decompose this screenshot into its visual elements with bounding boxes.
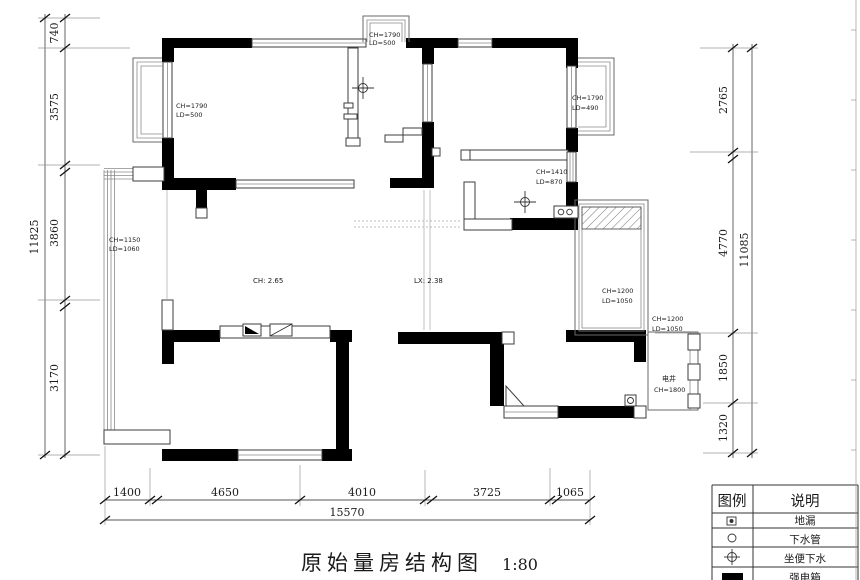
window [504, 406, 558, 418]
wall-segment [406, 38, 458, 48]
thin-wall [162, 300, 173, 330]
wall-segment [162, 178, 236, 190]
legend-row-desc: 强电箱 [789, 571, 821, 580]
label-bathroom-ld: LD=870 [536, 178, 562, 186]
dim-left-seg-3: 3170 [48, 364, 61, 392]
dim-bottom-seg-4: 1065 [556, 486, 584, 499]
wall-segment [398, 332, 502, 344]
thin-wall [432, 148, 440, 156]
label-balcony-right-lower-ld: LD=1050 [652, 325, 683, 333]
wall-segment [322, 449, 352, 461]
legend-table: 图例 说明 地漏 下水管 坐便下水 强电箱 [712, 485, 858, 580]
dim-right-seg-1: 4770 [717, 229, 730, 257]
drawing-scale: 1:80 [502, 555, 538, 574]
drawing-title: 原始量房结构图 [301, 551, 483, 575]
thin-wall [346, 138, 360, 146]
wall-segment [490, 344, 504, 406]
legend-col-desc: 说明 [791, 493, 820, 510]
wall-segment [422, 48, 434, 64]
floor-drain-symbol [625, 395, 636, 406]
window [163, 62, 172, 138]
dimension-right: 2765 4770 1850 1320 11085 [655, 44, 758, 458]
legend-row-desc: 坐便下水 [784, 552, 826, 565]
label-beam-height: LX: 2.38 [414, 277, 443, 285]
dim-right-total: 11085 [738, 233, 751, 268]
symbols [243, 77, 636, 406]
wall-segment [196, 190, 207, 208]
sheet-edge-ruler [851, 0, 856, 580]
window [458, 39, 492, 47]
thin-wall [348, 48, 358, 138]
wall-segment [336, 342, 349, 450]
drain-pipe-symbol [554, 206, 578, 218]
label-balcony-left-ld: LD=1060 [109, 245, 140, 253]
door-swing [506, 386, 524, 406]
dim-bottom-seg-0: 1400 [113, 486, 141, 499]
label-bathroom-ch: CH=1410 [536, 168, 567, 176]
window [567, 152, 576, 182]
legend-col-symbol: 图例 [718, 493, 747, 510]
thin-wall [385, 135, 403, 142]
thin-wall [344, 114, 357, 119]
legend-row-desc: 地漏 [795, 514, 816, 527]
wall-segment [566, 48, 578, 68]
label-balcony-right-upper-ld: LD=1050 [602, 297, 633, 305]
hatch-area [582, 207, 641, 229]
label-shaft-ch: CH=1800 [654, 386, 685, 394]
floorplan-canvas: CH=1790 LD=500 CH=1790 LD=500 CH=1150 LD… [0, 0, 860, 580]
label-balcony-right-lower-ch: CH=1200 [652, 315, 683, 323]
label-bay-right-ch: CH=1790 [572, 94, 603, 102]
wall-segment [566, 330, 646, 342]
label-shaft-name: 电井 [662, 374, 676, 383]
wall-segment [566, 128, 578, 152]
thin-wall [634, 406, 646, 418]
thin-wall [468, 150, 568, 160]
wall-segment [162, 330, 220, 342]
thin-wall [403, 128, 422, 135]
wall-segment [390, 178, 422, 188]
label-balcony-left-ch: CH=1150 [109, 236, 140, 244]
window [238, 450, 322, 460]
legend-row-desc: 下水管 [789, 533, 821, 546]
label-bay-top-ld: LD=500 [369, 39, 395, 47]
balcony-sill [104, 430, 170, 444]
dim-right-seg-2: 1850 [717, 354, 730, 382]
window [236, 180, 354, 188]
dim-bottom-seg-2: 4010 [348, 486, 376, 499]
balcony-left [104, 167, 170, 444]
dim-right-seg-0: 2765 [717, 86, 730, 114]
wall-segment [162, 48, 174, 62]
window [423, 64, 432, 122]
label-bay-top-ch: CH=1790 [369, 31, 400, 39]
label-living-height: CH: 2.65 [253, 277, 283, 285]
label-balcony-right-upper-ch: CH=1200 [602, 287, 633, 295]
thin-wall [502, 332, 514, 344]
wall-segment [634, 342, 646, 362]
drain-pipe-icon [728, 534, 736, 542]
balcony-sill [133, 167, 164, 181]
drawing-sheet: CH=1790 LD=500 CH=1790 LD=500 CH=1150 LD… [0, 0, 860, 580]
dim-left-total: 11825 [28, 220, 41, 255]
thin-wall [196, 208, 207, 218]
wall-segment [330, 330, 352, 342]
wall-segment [492, 38, 578, 48]
wall-segment [558, 406, 634, 418]
wall-segment [162, 38, 252, 48]
dim-bottom-total: 15570 [330, 506, 365, 519]
wall-segment [162, 449, 238, 461]
label-room-topleft-ld: LD=500 [176, 111, 202, 119]
window [252, 39, 366, 47]
dim-left-seg-2: 3860 [48, 219, 61, 247]
balcony-right [575, 200, 648, 335]
electric-shaft [648, 332, 700, 410]
bay-window-left [133, 58, 162, 142]
thin-wall [461, 150, 470, 160]
toilet-drain-icon [724, 549, 740, 565]
dim-right-seg-3: 1320 [717, 414, 730, 442]
dim-left-seg-1: 3575 [48, 93, 61, 121]
dim-bottom-seg-1: 4650 [211, 486, 239, 499]
floor-drain-icon [727, 517, 736, 525]
label-bay-right-ld: LD=490 [572, 104, 598, 112]
electric-box-icon [722, 573, 743, 580]
thin-wall [344, 103, 353, 108]
toilet-drain-symbol [514, 191, 536, 213]
wall-segment [162, 342, 174, 364]
dim-bottom-seg-3: 3725 [473, 486, 501, 499]
label-room-topleft-ch: CH=1790 [176, 102, 207, 110]
wall-segment [510, 218, 578, 230]
thin-wall [464, 219, 512, 230]
dim-left-seg-0: 740 [48, 23, 61, 44]
